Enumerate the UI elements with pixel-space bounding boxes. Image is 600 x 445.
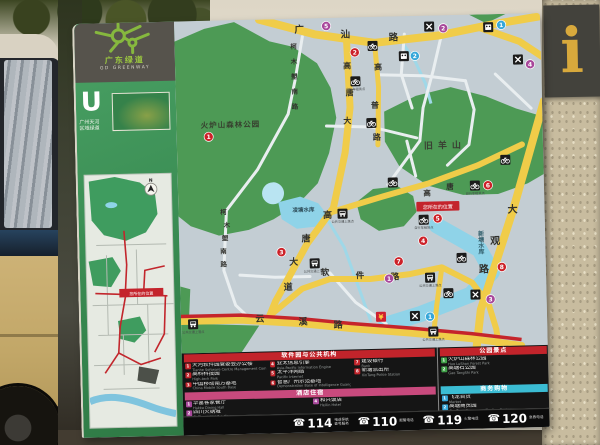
hotline-number: 120 [502,412,527,425]
legend-item-en: Gao TangShi Park [448,370,547,376]
legend-item: 8新塘派出所XinTang Police Station [355,367,436,378]
map-label: 南 [291,87,298,96]
legend-bullet: 2 [185,373,191,379]
map-marker-1: 1 [425,312,434,321]
region-letter: U [81,87,103,117]
map-marker-1: 1 [496,20,505,29]
icon-note: 公共交通上落点 [419,282,442,288]
legend-bullet: 8 [355,369,361,375]
hotline-label: 报警电话 [399,419,413,423]
svg-text:1: 1 [499,22,503,29]
map-marker-7: 7 [394,257,403,266]
legend-bullet: 7 [354,359,360,365]
store-icon [483,22,493,32]
map-label: 柯 [290,42,297,51]
hotline-entry: ☎119火警电话 [422,414,478,427]
icon-note: 公共交通上落点 [304,268,327,274]
legend-bullet: 4 [270,361,276,367]
legend-bullet: 4 [313,398,319,404]
dine-icon [513,54,523,64]
svg-text:3: 3 [488,296,492,303]
legend-bullet: 1 [441,357,447,363]
map-label: 木 [222,220,230,229]
icon-note: 自行车租赁点 [346,86,366,91]
phone-icon: ☎ [293,419,306,429]
icon-note: 公共交通上落点 [422,336,445,342]
map-label: 路 [292,102,299,111]
yuan-icon: ¥ [376,312,386,322]
phone-icon: ☎ [487,414,500,424]
map-label: 溪 [298,316,308,328]
legend-item: 6智慧广州示范基地Demonstration Base of Intellige… [270,378,351,389]
greenway-logo-icon [74,22,175,56]
map-label: 路 [334,319,344,331]
legend-bullet: 1 [185,363,191,369]
legend-items-parks: 1火炉山森林公园Huo LuShan Forest Park2高塘石公园Gao … [441,355,548,385]
map-label: 普 [371,100,379,110]
sign-left-column: 广东绿道 GD GREENWAY U 广州天河 区域绿道 [74,22,184,438]
main-map: 您所在的位置 广汕路高唐大高普路高唐大道高唐软件路大观路云溪路柯木塱南路柯木塱南… [174,13,550,354]
map-label: 路 [389,31,399,43]
map-label: 高 [343,60,351,70]
compass-icon: N [145,178,157,196]
svg-text:5: 5 [436,216,440,223]
map-label: 南 [220,246,227,255]
map-label: 唐 [301,232,310,244]
region-label: 广州天河 区域绿道 [79,119,99,131]
hotline-number: 114 [307,417,332,430]
overview-greenway-routes [94,230,169,374]
information-sign: i [543,5,600,98]
legend-items-software: 1天河软件园管委会办公楼Tianhe Software Centre Manag… [185,358,436,392]
map-legend: 软件园与公共机构 1天河软件园管委会办公楼Tianhe Software Cen… [182,345,550,417]
overview-river [90,396,176,416]
map-label: 路 [220,259,227,268]
location-marker: 您所在的位置 [416,201,459,212]
map-marker-5: 5 [321,21,330,30]
bike-icon [457,253,467,263]
map-marker-2: 2 [350,48,359,57]
map-label: 高 [423,188,431,198]
svg-text:6: 6 [486,182,490,189]
legend-item: 4和兴饭店HeXin Hotel [313,396,436,408]
map-label: 大 [343,115,351,125]
svg-text:2: 2 [353,49,357,56]
icon-note: 自行车租赁点 [414,225,434,230]
overview-location-marker: 您所在的位置 [119,288,163,298]
map-marker-4: 4 [418,236,427,245]
legend-bullet: 3 [185,382,191,388]
map-label: 云 [255,314,264,325]
photo-of-greenway-map-sign: i 广东绿道 [0,0,600,445]
legend-bullet: 2 [441,367,447,373]
greenway-sign-board: 广东绿道 GD GREENWAY U 广州天河 区域绿道 [72,13,550,438]
bus-curtain [4,60,52,228]
phone-icon: ☎ [358,417,371,427]
bike-icon [500,155,510,165]
legend-item: 3中国移动南方基地China Mobile South Base [185,380,266,391]
svg-text:4: 4 [528,61,532,68]
hotline-label: 急救电话 [529,416,543,420]
svg-text:1: 1 [207,134,211,141]
map-label: 大 [289,256,298,268]
map-label: 汕 [340,28,350,40]
hotline-label: 火警电话 [464,418,478,422]
legend-left-block: 软件园与公共机构 1天河软件园管委会办公楼Tianhe Software Cen… [182,347,439,416]
map-label: 柯 [220,207,227,216]
legend-bullet: 1 [442,395,448,401]
hotline-entry: ☎114电话导航查号服务 [293,417,349,430]
dine-icon [470,289,480,299]
svg-text:8: 8 [500,264,504,271]
map-label: 木 [290,57,298,66]
information-icon: i [560,20,585,82]
legend-bullet: 6 [270,380,276,386]
map-label: 观 [490,235,500,247]
map-label: 火炉山森林公园 [201,119,261,130]
hotline-number: 110 [372,415,397,428]
map-marker-1: 1 [204,132,213,141]
hotline-number: 119 [437,414,462,427]
overview-parks [87,176,161,344]
map-marker-2: 2 [438,24,447,33]
svg-text:3: 3 [279,249,283,256]
svg-text:2: 2 [441,25,445,32]
map-label: 高 [374,62,382,72]
phone-icon: ☎ [423,416,436,426]
bike-icon [367,41,377,51]
map-label: 旧羊山 [424,139,466,152]
bike-icon [388,177,398,187]
svg-text:¥: ¥ [378,313,383,321]
legend-bullet: 5 [270,371,276,377]
map-label: 广 [294,24,304,36]
map-marker-6: 6 [483,181,492,190]
legend-right-block: 公园景点 1火炉山森林公园Huo LuShan Forest Park2高塘石公… [438,345,550,411]
icon-note: 自行车租赁点 [465,190,485,195]
svg-text:您所在的位置: 您所在的位置 [129,290,153,297]
map-label: 件 [356,270,365,281]
legend-item: 2高塘石公园Gao TangShi Park [441,364,547,376]
bus [0,34,64,445]
map-marker-1: 1 [384,274,393,283]
map-marker-2: 2 [410,51,419,60]
svg-text:7: 7 [397,259,401,266]
hotline-entry: ☎110报警电话 [358,415,414,428]
icon-note: 公共交通上落点 [182,329,205,335]
sign-header: 广东绿道 GD GREENWAY [74,22,175,83]
bike-icon [443,288,453,298]
svg-text:5: 5 [324,23,328,30]
svg-text:2: 2 [413,53,417,60]
map-label: 道 [284,281,293,293]
store-icon [399,51,409,61]
svg-text:1: 1 [387,276,391,283]
legend-bullet: 1 [186,401,192,407]
svg-text:4: 4 [421,238,425,245]
map-label: 新塘水库 [476,230,484,256]
legend-item-en: HeXin Hotel [320,401,436,407]
hotline-label: 电话导航查号服务 [334,419,349,427]
bus-body-seam [0,334,62,337]
main-map-svg: 您所在的位置 广汕路高唐大高普路高唐大道高唐软件路大观路云溪路柯木塱南路柯木塱南… [174,13,550,354]
map-marker-4: 4 [525,60,534,69]
overview-built-area [137,366,159,385]
greenway-photo [112,92,171,131]
map-marker-5: 5 [433,214,442,223]
map-label: 大 [507,203,517,216]
bike-icon [366,118,376,128]
icon-note: 公共交通上落点 [332,218,355,224]
svg-text:您所在的位置: 您所在的位置 [423,203,453,211]
brand-name-en: GD GREENWAY [75,65,175,72]
hotline-entry: ☎120急救电话 [487,412,543,425]
map-label: 塱 [222,233,229,242]
map-label: 唐 [446,181,454,191]
region-line2: 区域绿道 [79,125,99,131]
map-label: 路 [479,262,490,275]
map-label: 塱 [291,72,298,81]
overview-map: N 您所在的位置 [85,174,177,428]
map-marker-8: 8 [497,262,506,271]
map-marker-3: 3 [486,295,495,304]
dine-icon [410,311,420,321]
map-marker-3: 3 [277,247,286,256]
svg-text:1: 1 [428,314,432,321]
dine-icon [424,21,434,31]
bus-window-reflection [0,230,60,256]
map-label: 路 [373,132,382,142]
legend-item-en: XinTang Police Station [362,372,436,377]
